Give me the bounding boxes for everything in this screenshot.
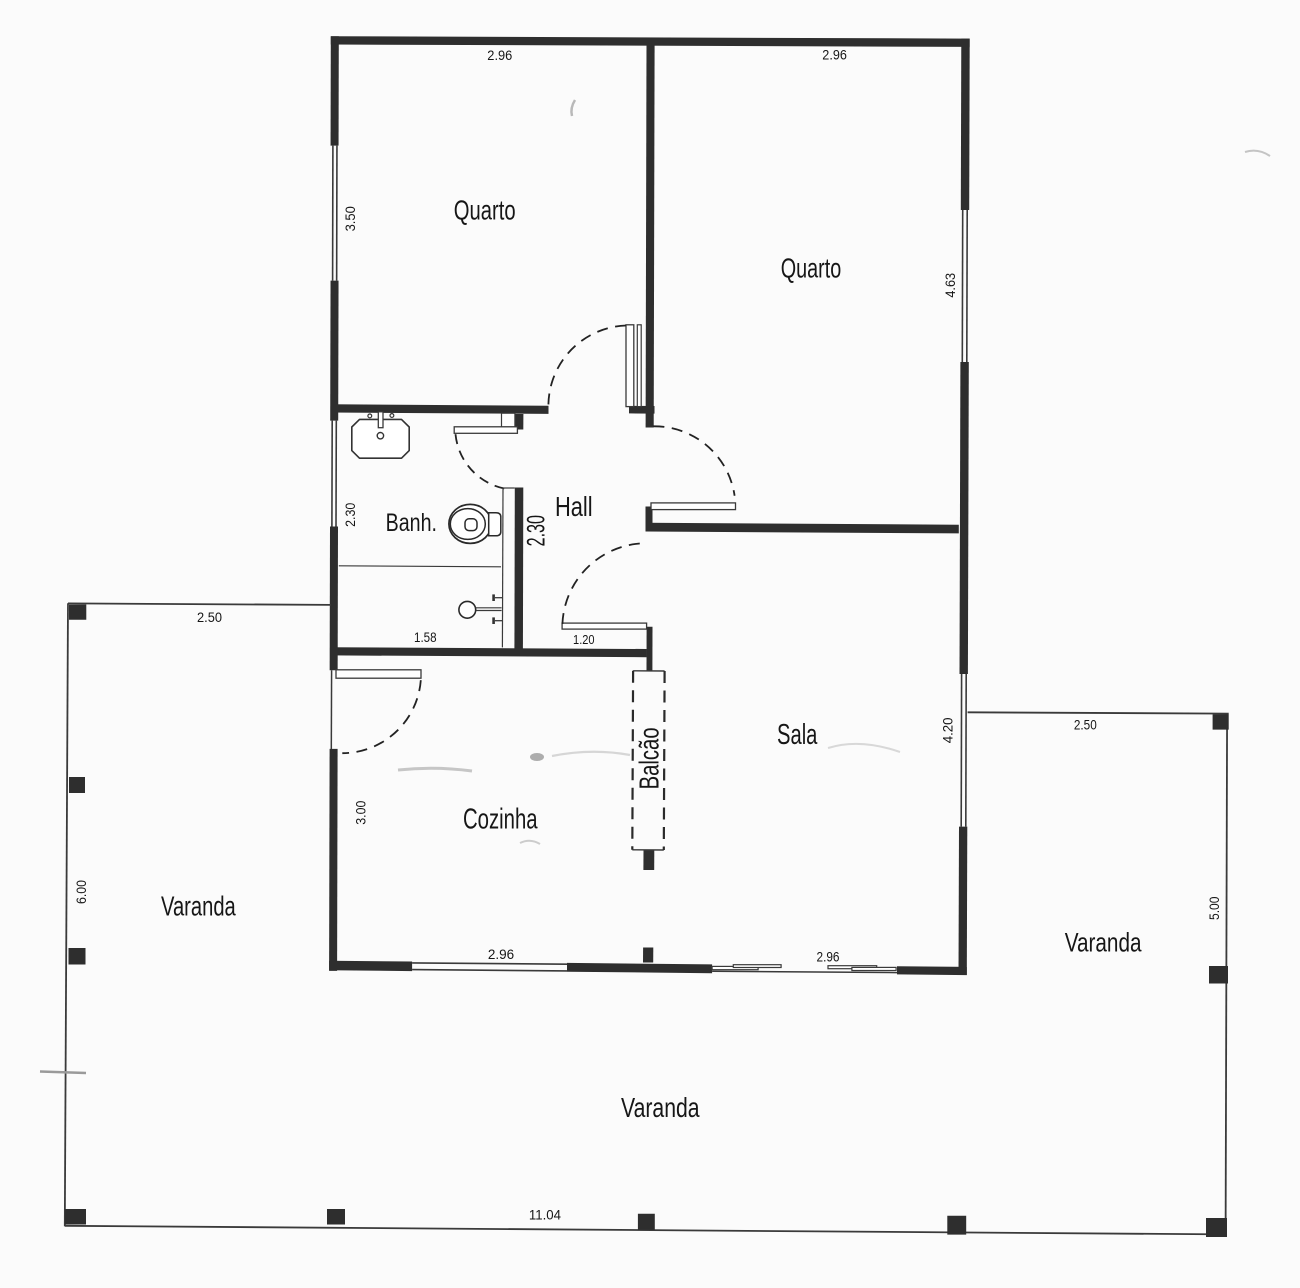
- svg-text:6.00: 6.00: [73, 880, 89, 904]
- svg-text:2.96: 2.96: [817, 949, 840, 965]
- svg-text:Quarto: Quarto: [454, 194, 516, 225]
- svg-text:1.20: 1.20: [573, 632, 595, 647]
- svg-text:2.96: 2.96: [488, 946, 515, 962]
- svg-text:Sala: Sala: [777, 719, 818, 751]
- svg-text:3.50: 3.50: [342, 206, 358, 231]
- svg-text:Varanda: Varanda: [1065, 928, 1143, 958]
- svg-text:Balcão: Balcão: [634, 727, 665, 789]
- svg-text:2.30: 2.30: [523, 515, 551, 546]
- svg-text:Cozinha: Cozinha: [463, 803, 538, 835]
- svg-text:2.30: 2.30: [342, 503, 358, 527]
- svg-text:4.20: 4.20: [939, 717, 955, 743]
- svg-text:2.50: 2.50: [1074, 717, 1097, 733]
- svg-text:4.63: 4.63: [942, 273, 958, 298]
- svg-text:2.50: 2.50: [197, 609, 222, 625]
- svg-text:Varanda: Varanda: [621, 1092, 700, 1123]
- svg-text:1.58: 1.58: [414, 630, 437, 645]
- svg-text:Hall: Hall: [555, 491, 593, 522]
- svg-text:5.00: 5.00: [1206, 896, 1222, 920]
- svg-text:Varanda: Varanda: [161, 891, 236, 922]
- svg-text:2.96: 2.96: [487, 47, 512, 63]
- svg-text:3.00: 3.00: [353, 801, 369, 825]
- svg-text:11.04: 11.04: [529, 1207, 561, 1223]
- svg-text:Banh.: Banh.: [386, 509, 437, 537]
- svg-text:2.96: 2.96: [822, 47, 847, 63]
- svg-text:Quarto: Quarto: [781, 252, 842, 283]
